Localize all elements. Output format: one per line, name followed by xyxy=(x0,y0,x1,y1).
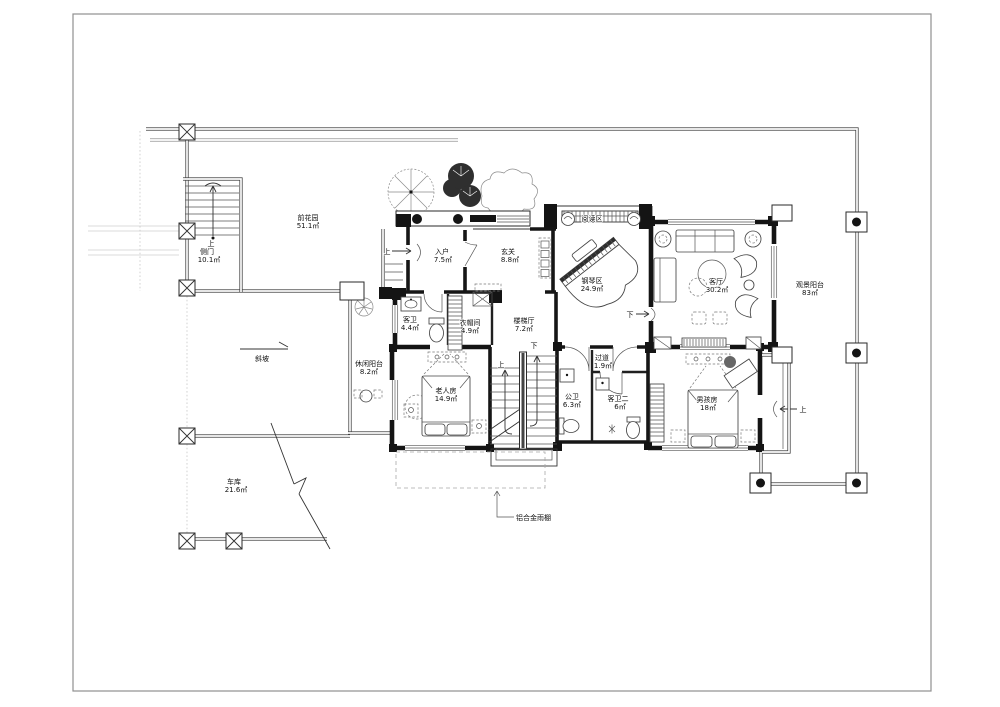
toilet xyxy=(430,324,444,342)
area-label-guest-bath2: 6㎡ xyxy=(614,403,625,411)
area-label-view-balcony: 83㎡ xyxy=(802,289,818,297)
porch-canopy xyxy=(396,211,530,226)
pillow xyxy=(447,424,467,435)
pillow xyxy=(715,436,736,447)
room-label-public-bath: 公卫 xyxy=(565,393,579,401)
room-label-entry: 入户 xyxy=(435,247,449,256)
room-label-guest-bath2: 客卫二 xyxy=(608,394,629,403)
toilet-tank xyxy=(429,318,444,324)
area-label-entry: 7.5㎡ xyxy=(434,256,452,264)
direction-label-down-stair: 下 xyxy=(531,342,538,350)
canopy-label: 铝合金雨棚 xyxy=(516,513,551,522)
room-label-side-gate: 侧门 xyxy=(200,247,214,256)
room-label-boys-room: 男孩房 xyxy=(697,395,718,404)
wardrobe xyxy=(650,384,664,442)
room-label-garage: 车库 xyxy=(227,477,241,486)
room-label-foyer: 玄关 xyxy=(501,247,515,256)
area-label-leisure-balcony: 8.2㎡ xyxy=(360,368,378,376)
area-label-boys-room: 18㎡ xyxy=(700,404,716,412)
porch-column xyxy=(453,214,463,224)
sofa xyxy=(676,230,734,252)
room-label-reading-area: 阅读区 xyxy=(582,214,603,223)
area-label-cloakroom: 4.9㎡ xyxy=(461,327,479,335)
plant xyxy=(655,231,671,247)
area-label-elder-room: 14.9㎡ xyxy=(435,395,458,403)
room-label-cloakroom: 衣帽间 xyxy=(460,318,481,327)
side-table xyxy=(744,280,754,290)
area-label-stair-hall: 7.2㎡ xyxy=(515,325,533,333)
room-label-elder-room: 老人房 xyxy=(436,386,457,395)
tv-cabinet xyxy=(682,338,726,347)
room-label-stair-hall: 楼梯厅 xyxy=(514,316,535,325)
direction-label-up-stair: 上 xyxy=(498,360,505,369)
pillow xyxy=(425,424,445,435)
floor-plan-page: 前花园 51.1㎡ 上 侧门 10.1㎡ 上 入户 7.5㎡ 玄关 8.8㎡ 阅… xyxy=(0,0,1000,707)
pilaster xyxy=(772,347,792,363)
chaise xyxy=(654,258,676,302)
area-label-side-gate: 10.1㎡ xyxy=(198,256,221,264)
sheet-border xyxy=(73,14,931,691)
reading-chair xyxy=(562,213,575,226)
direction-label-up-boys-balcony: 上 xyxy=(800,405,807,414)
pilaster xyxy=(340,282,364,300)
toilet xyxy=(627,422,640,439)
direction-label-up-entry: 上 xyxy=(384,247,391,256)
floor-plan-drawing: 前花园 51.1㎡ 上 侧门 10.1㎡ 上 入户 7.5㎡ 玄关 8.8㎡ 阅… xyxy=(0,0,1000,707)
area-label-front-garden: 51.1㎡ xyxy=(297,222,320,230)
area-label-public-bath: 6.3㎡ xyxy=(563,401,581,409)
direction-label-down-living: 下 xyxy=(627,311,634,319)
plant xyxy=(745,231,761,247)
room-label-corridor: 过道 xyxy=(595,353,609,362)
porch-column xyxy=(412,214,422,224)
toilet xyxy=(563,420,579,433)
direction-label-up-garden: 上 xyxy=(208,239,215,248)
area-label-living-room: 30.2㎡ xyxy=(706,286,729,294)
slope-label: 斜坡 xyxy=(255,354,269,363)
area-label-foyer: 8.8㎡ xyxy=(501,256,519,264)
reading-chair xyxy=(628,213,641,226)
area-label-piano-area: 24.9㎡ xyxy=(581,285,604,293)
room-label-guest-bath: 客卫 xyxy=(403,315,417,324)
area-label-corridor: 1.9㎡ xyxy=(594,362,612,370)
room-label-piano-area: 钢琴区 xyxy=(582,276,603,285)
pilaster xyxy=(772,205,792,221)
area-label-guest-bath: 4.4㎡ xyxy=(401,324,419,332)
pillow xyxy=(691,436,712,447)
room-label-view-balcony: 观景阳台 xyxy=(796,280,824,289)
room-label-front-garden: 前花园 xyxy=(298,213,319,222)
area-label-garage: 21.6㎡ xyxy=(225,486,248,494)
desk-chair xyxy=(724,356,736,368)
room-label-leisure-balcony: 休闲阳台 xyxy=(355,359,383,368)
room-label-living-room: 客厅 xyxy=(709,277,723,286)
